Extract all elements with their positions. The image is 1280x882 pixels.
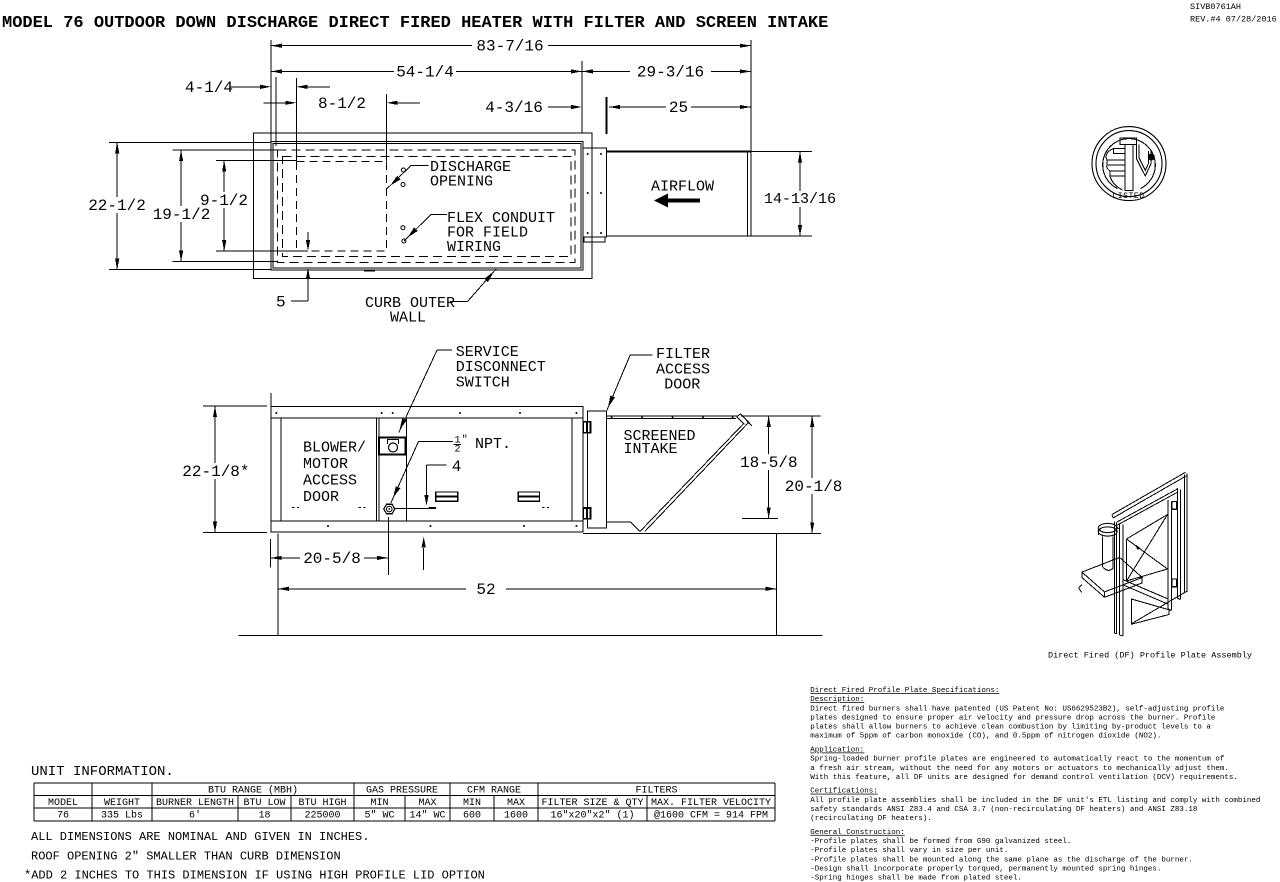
- svg-text:": ": [462, 434, 468, 446]
- svg-text:14-13/16: 14-13/16: [764, 191, 836, 208]
- svg-text:AIRFLOW: AIRFLOW: [651, 179, 714, 196]
- svg-text:4: 4: [452, 458, 462, 476]
- svg-text:22-1/8*: 22-1/8*: [182, 463, 249, 481]
- svg-text:maximum of 5ppm of carbon mono: maximum of 5ppm of carbon monoxide (CO),…: [810, 733, 1161, 741]
- svg-text:*ADD 2 INCHES TO THIS DIMENSIO: *ADD 2 INCHES TO THIS DIMENSION IF USING…: [24, 869, 485, 882]
- svg-text:52: 52: [476, 581, 495, 599]
- svg-text:SIVB0761AH: SIVB0761AH: [1190, 2, 1241, 12]
- svg-text:2: 2: [455, 445, 461, 456]
- svg-text:83-7/16: 83-7/16: [476, 38, 543, 56]
- svg-text:OPENING: OPENING: [430, 173, 493, 190]
- svg-text:BTU RANGE (MBH): BTU RANGE (MBH): [208, 785, 298, 797]
- svg-text:25: 25: [669, 99, 688, 117]
- svg-text:BTU LOW: BTU LOW: [243, 798, 285, 809]
- svg-text:CFM RANGE: CFM RANGE: [467, 786, 521, 797]
- svg-text:-Profile plates shall vary in: -Profile plates shall vary in size per u…: [810, 847, 1008, 855]
- svg-text:-Design shall incorporate prop: -Design shall incorporate properly torqu…: [810, 866, 1161, 874]
- svg-text:BTU HIGH: BTU HIGH: [298, 798, 346, 809]
- svg-text:MODEL 76 OUTDOOR DOWN DISCHARG: MODEL 76 OUTDOOR DOWN DISCHARGE DIRECT F…: [2, 14, 828, 33]
- svg-text:MAX. FILTER VELOCITY: MAX. FILTER VELOCITY: [651, 798, 771, 809]
- svg-text:-Profile plates shall be mount: -Profile plates shall be mounted along t…: [810, 856, 1193, 864]
- svg-text:225000: 225000: [304, 811, 340, 822]
- svg-text:a fresh air stream, without th: a fresh air stream, without the need for…: [810, 765, 1229, 773]
- svg-text:29-3/16: 29-3/16: [637, 63, 704, 81]
- svg-text:600: 600: [463, 811, 481, 822]
- svg-text:16"x20"x2" (1): 16"x20"x2" (1): [550, 810, 634, 822]
- svg-text:Application:: Application:: [810, 747, 864, 755]
- svg-text:INTAKE: INTAKE: [624, 441, 678, 458]
- svg-text:With this feature, all DF unit: With this feature, all DF units are desi…: [810, 774, 1238, 782]
- svg-text:ACCESS: ACCESS: [303, 473, 357, 490]
- svg-text:safety standards ANSI Z83.4 an: safety standards ANSI Z83.4 and CSA 3.7 …: [810, 806, 1197, 814]
- svg-text:ALL DIMENSIONS ARE NOMINAL AND: ALL DIMENSIONS ARE NOMINAL AND GIVEN IN …: [31, 830, 369, 844]
- svg-text:REV.#4 07/28/2016: REV.#4 07/28/2016: [1190, 15, 1277, 25]
- svg-text:Description:: Description:: [810, 696, 864, 704]
- svg-text:MODEL: MODEL: [48, 798, 78, 809]
- svg-text:BURNER LENGTH: BURNER LENGTH: [156, 798, 234, 809]
- svg-text:6': 6': [189, 810, 201, 822]
- svg-text:All profile plate assemblies s: All profile plate assemblies shall be in…: [810, 797, 1260, 805]
- svg-text:FILTER SIZE & QTY: FILTER SIZE & QTY: [541, 798, 643, 809]
- svg-text:4-1/4: 4-1/4: [185, 79, 233, 97]
- svg-text:NPT.: NPT.: [475, 436, 511, 453]
- svg-text:MAX: MAX: [507, 798, 525, 809]
- svg-text:-Profile plates shall be forme: -Profile plates shall be formed from G90…: [810, 838, 1071, 846]
- svg-text:-Spring hinges shall be made f: -Spring hinges shall be made from plated…: [810, 875, 1022, 882]
- svg-text:@1600 CFM = 914 FPM: @1600 CFM = 914 FPM: [654, 810, 768, 822]
- svg-text:54-1/4: 54-1/4: [396, 63, 454, 81]
- svg-text:20-5/8: 20-5/8: [303, 550, 361, 568]
- svg-text:MOTOR: MOTOR: [303, 456, 348, 473]
- svg-text:FILTERS: FILTERS: [635, 786, 677, 797]
- svg-text:20-1/8: 20-1/8: [785, 478, 843, 496]
- svg-text:14" WC: 14" WC: [409, 810, 445, 822]
- svg-text:22-1/2: 22-1/2: [88, 197, 146, 215]
- svg-text:Direct Fired Profile Plate Spe: Direct Fired Profile Plate Specification…: [810, 687, 999, 695]
- svg-text:plates designed to ensure prop: plates designed to ensure proper air vel…: [810, 714, 1215, 722]
- svg-text:4-3/16: 4-3/16: [485, 99, 543, 117]
- svg-text:1600: 1600: [504, 811, 528, 822]
- svg-text:335 Lbs: 335 Lbs: [101, 810, 143, 822]
- svg-text:(recirculating DF heaters).: (recirculating DF heaters).: [810, 815, 932, 823]
- svg-text:WIRING: WIRING: [447, 239, 501, 256]
- svg-text:18-5/8: 18-5/8: [740, 454, 798, 472]
- svg-text:9-1/2: 9-1/2: [200, 192, 248, 210]
- svg-text:WALL: WALL: [390, 310, 426, 327]
- svg-text:DOOR: DOOR: [303, 489, 339, 506]
- svg-text:8-1/2: 8-1/2: [318, 95, 366, 113]
- svg-text:Spring-loaded burner profile p: Spring-loaded burner profile plates are …: [810, 756, 1225, 764]
- svg-text:Direct fired burners shall hav: Direct fired burners shall have patented…: [810, 705, 1224, 713]
- svg-text:MIN: MIN: [463, 798, 481, 809]
- svg-text:plates shall allow burners to: plates shall allow burners to achieve cl…: [810, 724, 1211, 732]
- svg-text:76: 76: [57, 811, 69, 822]
- svg-text:GAS PRESSURE: GAS PRESSURE: [366, 786, 438, 797]
- svg-text:LISTED: LISTED: [1112, 192, 1144, 201]
- svg-text:SWITCH: SWITCH: [456, 374, 510, 391]
- svg-text:5: 5: [276, 294, 286, 312]
- svg-text:UNIT INFORMATION.: UNIT INFORMATION.: [31, 764, 174, 780]
- svg-text:18: 18: [258, 811, 270, 822]
- svg-text:General Construction:: General Construction:: [810, 829, 905, 837]
- svg-text:MIN: MIN: [370, 798, 388, 809]
- svg-text:ROOF OPENING 2" SMALLER THAN C: ROOF OPENING 2" SMALLER THAN CURB DIMENS…: [31, 850, 341, 864]
- svg-text:Direct Fired (DF) Profile Plat: Direct Fired (DF) Profile Plate Assembly: [1048, 651, 1252, 661]
- svg-text:WEIGHT: WEIGHT: [104, 798, 140, 809]
- svg-text:BLOWER/: BLOWER/: [303, 440, 366, 457]
- svg-text:MAX: MAX: [418, 798, 436, 809]
- svg-text:Certifications:: Certifications:: [810, 788, 878, 796]
- svg-text:DOOR: DOOR: [664, 377, 700, 394]
- svg-text:5" WC: 5" WC: [364, 810, 394, 822]
